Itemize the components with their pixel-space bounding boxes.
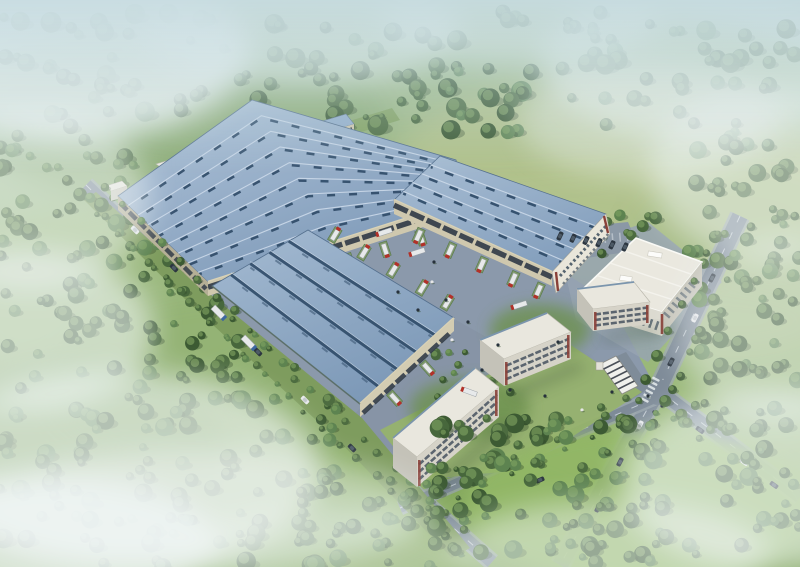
tree-crown <box>434 488 439 493</box>
tree-crown <box>683 246 691 254</box>
tree-crown <box>373 449 378 454</box>
tree-crown <box>590 435 593 438</box>
tree-crown <box>196 305 200 309</box>
tree-crown <box>605 450 609 454</box>
tree-crown <box>480 454 485 459</box>
person-shadow <box>527 361 531 362</box>
tree-crown <box>217 371 224 378</box>
person-shadow <box>433 263 437 264</box>
person-shadow <box>431 283 435 284</box>
tree-crown <box>602 412 607 417</box>
tree-crown <box>324 434 331 441</box>
person-shadow <box>611 393 615 394</box>
tree-crown <box>446 349 450 353</box>
tree-crown <box>263 372 266 375</box>
tree-crown <box>165 279 170 284</box>
tree-crown <box>454 467 457 470</box>
tree-crown <box>576 474 585 483</box>
tree-crown <box>598 404 603 409</box>
tree-crown <box>627 231 633 237</box>
tree-crown <box>560 431 568 439</box>
person-shadow <box>647 397 651 398</box>
tree-crown <box>511 455 515 459</box>
tree-crown <box>427 464 433 470</box>
red-accent <box>646 305 649 323</box>
tree-crown <box>317 415 323 421</box>
tree-crown <box>652 351 659 358</box>
red-accent <box>594 312 597 330</box>
tree-crown <box>653 411 656 414</box>
tree-crown <box>433 476 442 485</box>
tree-crown <box>473 490 482 499</box>
tree-crown <box>332 405 337 410</box>
tree-crown <box>230 317 233 320</box>
tree-crown <box>301 410 304 413</box>
tree-crown <box>459 427 468 436</box>
tree-crown <box>232 335 240 343</box>
tree-crown <box>286 393 289 396</box>
tree-crown <box>127 254 131 258</box>
tree-crown <box>198 332 202 336</box>
tree-crown <box>187 337 195 345</box>
tree-crown <box>511 460 517 466</box>
tree-crown <box>164 275 168 279</box>
tree-crown <box>437 462 444 469</box>
tree-crown <box>243 356 247 360</box>
tree-crown <box>615 210 621 216</box>
person-shadow <box>661 407 665 408</box>
tree-crown <box>248 329 251 332</box>
tree-crown <box>483 415 488 420</box>
tree-crown <box>481 495 491 505</box>
tree-crown <box>328 423 334 429</box>
tree-crown <box>650 213 657 220</box>
tree-crown <box>177 258 182 263</box>
tree-crown <box>496 456 505 465</box>
aerial-rendering <box>0 0 800 567</box>
tree-crown <box>463 350 466 353</box>
tree-crown <box>664 327 669 332</box>
tree-crown <box>532 435 539 442</box>
person-shadow <box>417 311 421 312</box>
tree-crown <box>213 294 218 299</box>
person-shadow <box>445 301 449 302</box>
industrial-park-scene <box>0 0 800 567</box>
tree-crown <box>578 463 584 469</box>
tree-crown <box>353 454 358 459</box>
person-shadow <box>451 341 455 342</box>
tree-crown <box>177 287 182 292</box>
tree-crown <box>461 477 468 484</box>
tree-crown <box>212 360 220 368</box>
tree-crown <box>261 342 266 347</box>
tree-crown <box>267 346 270 349</box>
gate-booth <box>596 362 603 370</box>
person-shadow <box>397 293 401 294</box>
tree-crown <box>167 289 171 293</box>
tree-crown <box>455 362 459 366</box>
tree-crown <box>291 376 295 380</box>
tree-crown <box>279 359 284 364</box>
tree-crown <box>232 372 239 379</box>
person-shadow <box>481 371 485 372</box>
tree-crown <box>554 482 562 490</box>
sky-haze <box>0 0 800 175</box>
tree-crown <box>660 396 667 403</box>
tree-crown <box>479 480 484 485</box>
tree-crown <box>319 426 322 429</box>
person-shadow <box>544 397 548 398</box>
tree-crown <box>191 358 200 367</box>
tree-crown <box>186 298 191 303</box>
tree-crown <box>617 422 621 426</box>
tree-crown <box>440 377 444 381</box>
tree-crown <box>514 441 519 446</box>
red-accent <box>505 362 508 385</box>
person-shadow <box>557 343 561 344</box>
tree-crown <box>324 395 331 402</box>
tree-crown <box>507 415 518 426</box>
tree-crown <box>254 362 258 366</box>
tree-crown <box>145 259 150 264</box>
tree-crown <box>549 420 557 428</box>
tree-crown <box>194 276 199 281</box>
tree-crown <box>525 474 532 481</box>
tree-crown <box>423 480 428 485</box>
tree-crown <box>641 375 647 381</box>
tree-crown <box>431 507 439 515</box>
tree-crown <box>456 496 459 499</box>
tree-crown <box>492 432 501 441</box>
tree-crown <box>230 350 236 356</box>
tree-crown <box>482 513 486 517</box>
tree-crown <box>544 428 548 432</box>
person-shadow <box>497 346 501 347</box>
tree-crown <box>152 265 155 268</box>
tree-crown <box>591 469 597 475</box>
tree-crown <box>611 472 619 480</box>
tree-crown <box>645 213 650 218</box>
person-shadow <box>581 411 585 412</box>
tree-crown <box>703 250 707 254</box>
tree-crown <box>241 352 244 355</box>
tree-crown <box>139 272 145 278</box>
tree-crown <box>598 249 603 254</box>
person-shadow <box>509 391 513 392</box>
tree-crown <box>555 437 559 441</box>
tree-crown <box>510 472 513 475</box>
tree-crown <box>451 370 454 373</box>
tree-crown <box>202 308 209 315</box>
tree-crown <box>275 382 278 385</box>
tree-crown <box>432 420 443 431</box>
red-accent <box>567 335 570 358</box>
tree-crown <box>638 221 645 228</box>
tree-crown <box>623 420 629 426</box>
tree-crown <box>226 337 229 340</box>
tree-crown <box>454 503 463 512</box>
tree-crown <box>307 386 311 390</box>
tree-crown <box>677 372 682 377</box>
tree-crown <box>342 418 346 422</box>
tree-crown <box>252 332 255 335</box>
tree-crown <box>291 364 296 369</box>
tree-crown <box>461 526 466 531</box>
tree-crown <box>595 420 603 428</box>
person-shadow <box>467 323 471 324</box>
tree-crown <box>636 398 640 402</box>
tree-crown <box>563 447 566 450</box>
tree-crown <box>441 429 446 434</box>
tree-crown <box>623 395 627 399</box>
tree-crown <box>171 321 175 325</box>
tree-crown <box>565 417 570 422</box>
red-accent <box>495 390 498 416</box>
tree-crown <box>270 394 276 400</box>
red-accent <box>418 460 421 486</box>
tree-crown <box>362 437 365 440</box>
tree-crown <box>531 458 537 464</box>
tree-crown <box>138 241 147 250</box>
tree-crown <box>231 306 236 311</box>
tree-crown <box>207 320 210 323</box>
tree-crown <box>669 386 674 391</box>
tree-crown <box>455 421 461 427</box>
tree-crown <box>159 239 164 244</box>
tree-crown <box>435 394 439 398</box>
tree-crown <box>568 487 578 497</box>
